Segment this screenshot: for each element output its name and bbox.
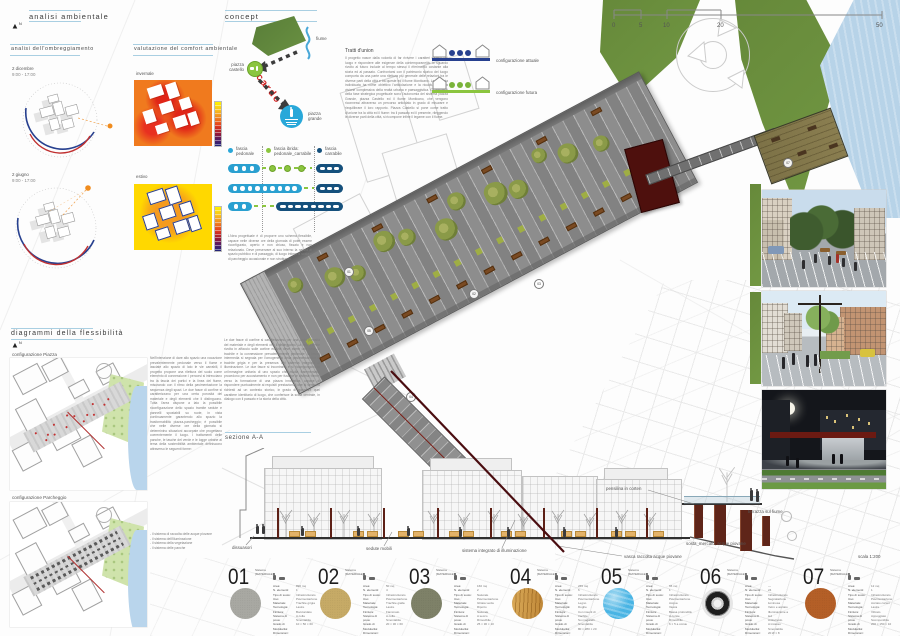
market-stall-dot	[47, 434, 49, 436]
building-footprint	[178, 200, 194, 216]
piazza-grande-node	[280, 105, 303, 128]
legend-dot-carrabile	[317, 148, 322, 153]
section-title: sezione A-A	[225, 435, 264, 441]
minimap-config-parcheggio	[10, 502, 147, 627]
person-icon	[363, 575, 366, 580]
render-pole-arm	[798, 303, 842, 305]
label-sosta-mercato: sosta_mercato, acque piovane	[686, 541, 746, 546]
building-footprint	[165, 82, 180, 100]
band-carrabile-estesa	[276, 202, 343, 211]
car-icon	[334, 167, 340, 171]
market-stall-dot	[65, 426, 67, 428]
car-icon	[652, 577, 658, 580]
person-icon	[234, 204, 239, 209]
building-footprint	[187, 111, 200, 126]
label-sedute-mobili: sedute mobili	[366, 546, 392, 551]
material-item: 04 Sistema [MATERIALE] Area: N. elementi…	[510, 567, 600, 635]
tree-dot-icon	[449, 82, 455, 88]
material-icons	[273, 575, 285, 580]
person-icon	[278, 186, 283, 191]
material-swatch	[512, 588, 543, 619]
scale-bar: 0 5 10 20 50	[608, 6, 894, 30]
heatmap-label-invernale: invernale	[136, 71, 154, 76]
building-footprint	[155, 122, 169, 134]
tree-dot-icon	[284, 165, 291, 172]
material-item: 07 Sistema [MATERIALE] Area: N. elementi…	[803, 567, 893, 635]
house-icon	[432, 44, 447, 58]
person-icon	[248, 186, 253, 191]
material-item: 05 Sistema [MATERIALE] Area: N. elementi…	[601, 567, 691, 635]
render-lit-ground	[762, 460, 886, 470]
material-icons	[555, 575, 567, 580]
render-trees	[790, 204, 860, 250]
person-icon	[270, 186, 275, 191]
market-stall-dot	[53, 424, 55, 426]
panel-title-flessibilita: diagrammi della flessibilità	[11, 330, 124, 337]
rule	[11, 339, 93, 340]
material-icons	[363, 575, 375, 580]
person-icon	[273, 575, 276, 580]
market-stall-dot	[86, 414, 88, 416]
person-icon	[646, 575, 649, 580]
label-config-attuale: configurazione attuale	[496, 58, 539, 63]
band-carrabile	[316, 184, 343, 193]
person-icon	[233, 186, 238, 191]
house-icon	[432, 76, 447, 90]
tree-dot-icon	[457, 82, 463, 88]
render-piazza-day-1	[762, 190, 886, 287]
building-footprint	[142, 212, 159, 230]
scale-tick: 5	[639, 23, 643, 29]
material-item: 02 Sistema [MATERIALE] Area: N. elementi…	[318, 567, 408, 635]
building-footprint	[179, 97, 193, 111]
material-swatch	[702, 588, 733, 619]
material-spec-values: — 24 Infrastrutturato Segnalazione lumin…	[768, 584, 791, 635]
car-dot-icon	[465, 50, 471, 56]
person-icon	[454, 575, 457, 580]
material-spec-values: 160 mq 2 Naturale Pavimentazione Ghiaia …	[477, 584, 500, 627]
roundabout	[96, 363, 112, 379]
render-bench	[820, 248, 830, 252]
car-dot-icon	[457, 50, 463, 56]
pedestrian-icon	[290, 109, 293, 117]
material-spec-labels: Area: N. elementi: Tipo di suolo: Uso: M…	[745, 584, 767, 635]
render-pavement	[762, 355, 886, 386]
car-icon	[751, 577, 757, 580]
label-config-piazza: configurazione Piazza	[12, 352, 57, 357]
person-icon	[285, 186, 290, 191]
render-road-strip	[762, 470, 886, 489]
config-attuale-diagram	[432, 44, 490, 64]
color-scale	[214, 206, 222, 252]
label-dissuasori: dissuasori	[232, 545, 252, 550]
building-footprint	[173, 114, 189, 128]
car-icon	[318, 205, 324, 209]
material-system-label: Sistema [MATERIALE]	[255, 569, 273, 577]
sun-path-diagram-june	[4, 182, 114, 270]
material-spec-values: 50 mq 4 Infrastrutturato Pavimentazione …	[386, 584, 409, 627]
person-icon	[292, 186, 297, 191]
person-icon	[745, 575, 748, 580]
river	[128, 386, 147, 490]
material-system-label: Sistema [MATERIALE]	[537, 569, 555, 577]
person-icon	[240, 186, 245, 191]
essay-title: Tratti d'union	[345, 48, 374, 54]
material-system-label: Sistema [MATERIALE]	[345, 569, 363, 577]
color-scale	[214, 101, 222, 147]
person-silhouette	[842, 258, 845, 267]
car-icon	[279, 577, 285, 580]
market-stall-dot	[53, 433, 55, 435]
lit-window	[868, 422, 870, 425]
wave-icon	[286, 122, 297, 123]
scale-tick: 10	[663, 23, 670, 29]
car-icon	[320, 187, 326, 191]
rule	[10, 55, 80, 56]
comfort-heatmap-summer	[134, 184, 212, 250]
market-stall-dot	[82, 420, 84, 422]
car-icon	[334, 187, 340, 191]
car-icon	[333, 205, 339, 209]
house-icon	[475, 44, 490, 58]
legend-dot-pedonale	[228, 148, 233, 153]
sun-path-diagram-december	[6, 76, 118, 162]
person-icon	[255, 186, 260, 191]
piazza-castello-node	[247, 61, 263, 77]
render-building	[840, 307, 886, 355]
render-building	[784, 313, 802, 351]
pedestrian-icon	[256, 66, 258, 71]
material-spec-labels: Area: N. elementi: Tipo di suolo: Uso: M…	[848, 584, 870, 635]
car-dot-icon	[449, 50, 455, 56]
render-car	[768, 246, 784, 254]
material-swatch	[603, 588, 634, 619]
comfort-heatmap-winter	[134, 80, 212, 146]
rule	[11, 328, 93, 329]
body-text-column-a: Nell'intenzione di dare allo spazio una …	[150, 356, 222, 530]
roundabout	[96, 507, 112, 523]
lit-window	[846, 414, 848, 417]
person-silhouette	[782, 357, 785, 369]
material-item: 01 Sistema [MATERIALE] Area: N. elementi…	[228, 567, 318, 635]
market-stall-dot	[107, 398, 109, 400]
label-terrazza: terrazza sul fiume	[748, 509, 783, 514]
market-stall-dot	[93, 414, 95, 416]
car-icon	[326, 205, 332, 209]
car-icon	[460, 577, 466, 580]
car-icon	[280, 205, 286, 209]
person-icon	[250, 166, 255, 171]
heatmap-label-estivo: estivo	[136, 174, 147, 179]
rule	[29, 10, 81, 11]
subtitle-comfort: valutazione del comfort ambientale	[134, 46, 238, 52]
car-icon	[327, 187, 333, 191]
label-piazza-grande: piazza grande	[308, 111, 322, 121]
lit-window	[858, 418, 860, 421]
rule	[29, 21, 81, 22]
lit-window	[834, 420, 836, 423]
lit-window	[852, 426, 854, 429]
material-spec-labels: Area: N. elementi: Tipo di suolo: Uso: M…	[646, 584, 668, 635]
north-arrow-icon: ▲N	[11, 22, 22, 31]
render-pavement	[762, 252, 886, 287]
person-icon	[242, 166, 247, 171]
config-futura-diagram	[432, 76, 490, 96]
person-silhouette	[854, 262, 857, 271]
render-piazza-night	[762, 390, 886, 470]
person-silhouette	[814, 254, 817, 263]
person-silhouette	[802, 260, 805, 269]
person-silhouette	[792, 353, 795, 365]
sun-diagram-date: 2 giugno	[12, 172, 29, 177]
band-ibrida-corta	[254, 204, 274, 209]
road-bar	[432, 58, 490, 61]
body-text-bullets: - il sistema di raccolta delle acque pio…	[150, 532, 224, 550]
render-car	[860, 349, 875, 357]
building-footprint	[147, 84, 165, 99]
bus-icon	[250, 67, 254, 70]
material-spec-labels: Area: N. elementi: Tipo di suolo: Uso: M…	[273, 584, 295, 635]
legend-label-pedonale: fascia pedonale	[236, 146, 254, 156]
market-stall-dot	[34, 432, 36, 434]
house-icon	[475, 76, 490, 90]
material-swatch	[230, 588, 261, 619]
person-silhouette	[786, 456, 789, 466]
car-icon	[295, 205, 301, 209]
band-carrabile	[316, 164, 343, 173]
band-pedonale	[228, 164, 260, 173]
scale-tick: 0	[612, 23, 616, 29]
panel-title-analisi: analisi ambientale	[29, 12, 109, 21]
material-icons	[646, 575, 658, 580]
legend-label-ibrida: fascia ibrida: pedonale_carrabile	[274, 146, 311, 156]
band-pedonale-corta	[228, 202, 252, 211]
material-spec-labels: Area: N. elementi: Tipo di suolo: Uso: M…	[555, 584, 577, 635]
building-footprint	[165, 185, 183, 205]
material-swatch	[411, 588, 442, 619]
rule	[133, 44, 213, 45]
essay-body: Il progetto nasce dalla volontà di far r…	[345, 56, 448, 150]
wave-icon	[287, 124, 296, 125]
material-spec-labels: Area: N. elementi: Tipo di suolo: Uso: M…	[454, 584, 476, 635]
material-spec-labels: Area: N. elementi: Tipo di suolo: Uso: M…	[363, 584, 385, 635]
car-icon	[854, 577, 860, 580]
car-icon	[288, 205, 294, 209]
road-bar	[432, 90, 490, 93]
car-icon	[311, 205, 317, 209]
person-silhouette	[806, 355, 809, 367]
person-silhouette	[840, 454, 843, 464]
person-icon	[555, 575, 558, 580]
person-silhouette	[796, 458, 799, 468]
label-illuminazione: sistema integrato di illuminazione	[462, 548, 527, 553]
label-config-parcheggio: configurazione Parcheggio	[12, 495, 66, 500]
material-system-label: Sistema [MATERIALE]	[830, 569, 848, 577]
person-silhouette	[832, 454, 835, 464]
material-spec-values: 265 mq 6 Infrastrutturato Pavimentazione…	[578, 584, 601, 631]
person-icon	[234, 166, 239, 171]
material-icons	[848, 575, 860, 580]
rule	[10, 44, 80, 45]
tree-dot-icon	[269, 165, 276, 172]
market-stall-dot	[91, 403, 93, 405]
label-piazza-castello: piazza castello	[222, 62, 244, 72]
lit-window	[826, 416, 828, 419]
person-icon	[848, 575, 851, 580]
building-footprint	[146, 188, 166, 206]
rule	[133, 55, 213, 56]
material-spec-values: 65 mq 1 Infrastrutturato Pavimentazione …	[669, 584, 692, 627]
car-icon	[303, 205, 309, 209]
render-pavilion	[822, 438, 864, 462]
tree-dot-icon	[298, 165, 305, 172]
building-footprint	[158, 204, 176, 221]
material-system-label: Sistema [MATERIALE]	[628, 569, 646, 577]
material-spec-values: 12 mq 1 Infrastrutturato Pavimentazione …	[871, 584, 894, 627]
legend-note: L'idea progettuale è di proporre uno sch…	[228, 234, 312, 270]
render-person	[836, 254, 839, 263]
presentation-board: analisi ambientale ▲N analisi dell'ombre…	[0, 0, 900, 636]
car-icon	[561, 577, 567, 580]
north-arrow-icon: ▲N	[11, 341, 22, 350]
road-dashes	[762, 478, 886, 480]
material-swatch	[320, 588, 351, 619]
material-item: 06 Sistema [MATERIALE] Area: N. elementi…	[700, 567, 790, 635]
body-text-column-b: Le due fasce di confine si caratterizzan…	[224, 338, 320, 430]
person-icon	[242, 204, 247, 209]
legend-dot-ibrida	[266, 148, 271, 153]
market-stall-dot	[45, 439, 47, 441]
scale-tick: 20	[717, 23, 724, 29]
legend-label-carrabile: fascia carrabile	[325, 146, 342, 156]
car-icon	[320, 167, 326, 171]
label-vasca: vasca raccolta acque piovane	[624, 554, 682, 559]
person-silhouette	[828, 256, 831, 265]
material-swatch	[805, 588, 836, 619]
market-stall-dot	[66, 414, 68, 416]
material-item: 03 Sistema [MATERIALE] Area: N. elementi…	[409, 567, 499, 635]
rule	[225, 432, 311, 433]
band-ibrida-corta	[304, 186, 314, 191]
legend-separator	[314, 146, 315, 232]
subtitle-ombreggiamento: analisi dell'ombreggiamento	[11, 46, 94, 52]
material-icons	[745, 575, 757, 580]
label-scala: scala 1:200	[858, 554, 880, 559]
building-footprint	[142, 109, 156, 125]
band-pedonale-estesa	[228, 184, 302, 193]
scale-tick: 50	[876, 23, 883, 29]
material-spec-values: 890 mq 1 Infrastrutturato Pavimentazione…	[296, 584, 319, 627]
label-config-futura: configurazione futura	[496, 90, 537, 95]
person-icon	[263, 186, 268, 191]
wave-icon	[285, 119, 298, 120]
render-piazza-day-2	[762, 291, 886, 386]
material-system-label: Sistema [MATERIALE]	[436, 569, 454, 577]
render-lawn	[820, 351, 850, 359]
band-ibrida	[262, 166, 312, 171]
sun-diagram-date: 2 dicembre	[12, 66, 34, 71]
materials-strip: 01 Sistema [MATERIALE] Area: N. elementi…	[226, 567, 900, 636]
building-footprint	[159, 100, 175, 114]
car-icon	[369, 577, 375, 580]
label-pensilina: pensilina in corten	[606, 486, 641, 491]
market-stall-dot	[103, 404, 105, 406]
minimap-config-piazza	[10, 358, 147, 490]
material-icons	[454, 575, 466, 580]
tree-dot-icon	[465, 82, 471, 88]
person-silhouette	[814, 354, 817, 366]
car-icon	[327, 167, 333, 171]
building-footprint	[155, 226, 172, 241]
material-system-label: Sistema [MATERIALE]	[727, 569, 745, 577]
